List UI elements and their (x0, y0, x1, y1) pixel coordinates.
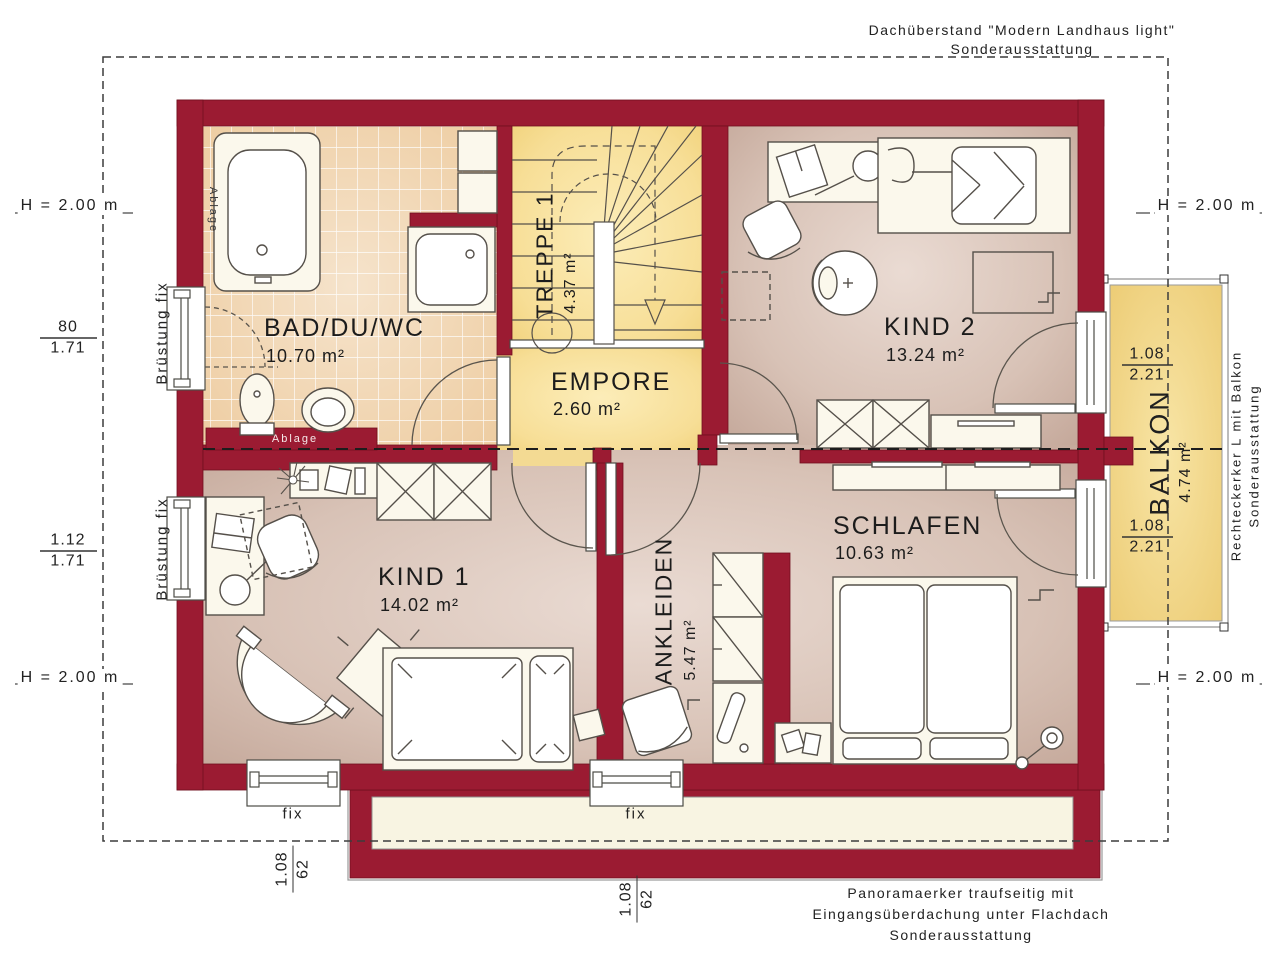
window-south-left (247, 760, 340, 806)
note-top-right-line2: Sonderausstattung (950, 41, 1093, 57)
bed-pillow (530, 656, 570, 762)
door-leaf-kind1 (586, 463, 596, 551)
room-label-balkon: BALKON (1145, 388, 1176, 516)
room-label-bad: BAD/DU/WC (264, 314, 425, 343)
wall-east (1078, 100, 1104, 790)
balkon-door-kind2 (1076, 312, 1106, 413)
empore-threshold (513, 450, 593, 466)
height-mark-top-right: H = 2.00 m (1155, 197, 1260, 215)
dim-left-top: 80 1.71 (50, 319, 85, 358)
door-leaf-ankleiden (606, 463, 616, 555)
bed-mattress (392, 658, 522, 760)
door-leaf-kind2 (720, 434, 798, 443)
note-bottom-right-line2: Eingangsüberdachung unter Flachdach (813, 906, 1110, 922)
bed-foot-cushion (930, 738, 1008, 759)
bath-shelf (458, 131, 497, 171)
height-mark-top-left: H = 2.00 m (18, 197, 123, 215)
panorama-erker (348, 788, 1102, 880)
room-label-schlafen: SCHLAFEN (833, 512, 982, 541)
bathtub-tap (255, 277, 271, 283)
wall-kind2-schlafen (800, 450, 1078, 463)
bed-pillow (952, 147, 1036, 224)
sideboard-handle (872, 462, 942, 467)
window-label-fix-mid: fix (626, 806, 647, 823)
bed-mattress (927, 585, 1011, 733)
wall-bath-east (497, 126, 512, 355)
ablage-label-wall: Ablage (207, 187, 219, 233)
door-leaf-kind2-balkon (995, 404, 1075, 413)
window-label-fix-left: fix (283, 806, 304, 823)
desk-lamp (220, 575, 250, 605)
room-label-ankleiden: ANKLEIDEN (651, 537, 678, 685)
bed-foot-cushion (843, 738, 921, 759)
room-label-kind1: KIND 1 (378, 563, 471, 592)
room-label-kind2: KIND 2 (884, 313, 977, 342)
room-area-ankleiden: 5.47 m² (682, 619, 700, 680)
balkon-corner-tick (1220, 275, 1228, 283)
bidet-base (240, 423, 274, 435)
bed-mattress (840, 585, 924, 733)
ablage-label-shelf: Ablage (272, 433, 318, 445)
shower-drain (466, 250, 474, 258)
balkon-door-schlafen (1076, 480, 1106, 587)
window-west-bottom (167, 497, 205, 600)
room-area-kind2: 13.24 m² (886, 345, 965, 366)
wall-balkon-stub (1104, 437, 1133, 465)
window-south-mid (590, 760, 683, 806)
room-area-schlafen: 10.63 m² (835, 543, 914, 564)
room-label-treppe: TREPPE 1 (532, 191, 559, 318)
dim-south-mid: 1.08 62 (618, 875, 657, 922)
window-label-bruestung-bottom: Brüstung fix (154, 497, 171, 600)
floor-plan-page: Dachüberstand "Modern Landhaus light" So… (0, 0, 1280, 960)
bidet-tap (254, 391, 260, 397)
room-area-bad: 10.70 m² (266, 346, 345, 367)
balkon-corner-tick (1220, 623, 1228, 631)
sideboard-handle (975, 462, 1030, 467)
dim-balkon-bottom: 1.08 2.21 (1123, 518, 1170, 557)
wall-stairs-east (702, 126, 728, 435)
height-mark-bottom-left: H = 2.00 m (18, 669, 123, 687)
note-right-side-line1: Rechteckerker L mit Balkon (1229, 351, 1244, 561)
room-label-empore: EMPORE (551, 368, 671, 397)
nightstand (573, 709, 605, 741)
sideboard-handle (958, 421, 1014, 426)
bidet (240, 374, 274, 426)
wc-bowl (311, 398, 345, 426)
floor-lamp (1041, 727, 1063, 749)
bathtub-drain (257, 245, 267, 255)
note-top-right-line1: Dachüberstand "Modern Landhaus light" (869, 22, 1176, 38)
height-mark-bottom-right: H = 2.00 m (1155, 669, 1260, 687)
wall-shower-stub (410, 213, 497, 227)
room-area-treppe: 4.37 m² (562, 252, 580, 313)
dim-balkon-top: 1.08 2.21 (1123, 346, 1170, 385)
window-west-top (167, 287, 205, 390)
swivel-armrest (819, 267, 837, 299)
sideboard (931, 415, 1041, 448)
door-leaf-bath (497, 357, 510, 445)
wall-west (177, 100, 203, 790)
window-label-bruestung-top: Brüstung fix (154, 281, 171, 384)
dim-south-left: 1.08 62 (274, 845, 313, 892)
note-right-side-line2: Sonderausstattung (1247, 384, 1262, 527)
wall-north (177, 100, 1104, 126)
dim-left-bottom: 1.12 1.71 (44, 532, 91, 571)
note-bottom-right-line3: Sonderausstattung (889, 927, 1032, 943)
empore-floor (497, 345, 702, 450)
stairs-newel (594, 222, 614, 344)
room-area-empore: 2.60 m² (553, 399, 621, 420)
bathtub-inner (228, 150, 306, 275)
room-area-balkon: 4.74 m² (1177, 441, 1195, 502)
shower-tray (416, 234, 487, 305)
bath-shelf (458, 173, 497, 213)
note-bottom-right-line1: Panoramaerker traufseitig mit (847, 885, 1074, 901)
room-area-kind1: 14.02 m² (380, 595, 459, 616)
